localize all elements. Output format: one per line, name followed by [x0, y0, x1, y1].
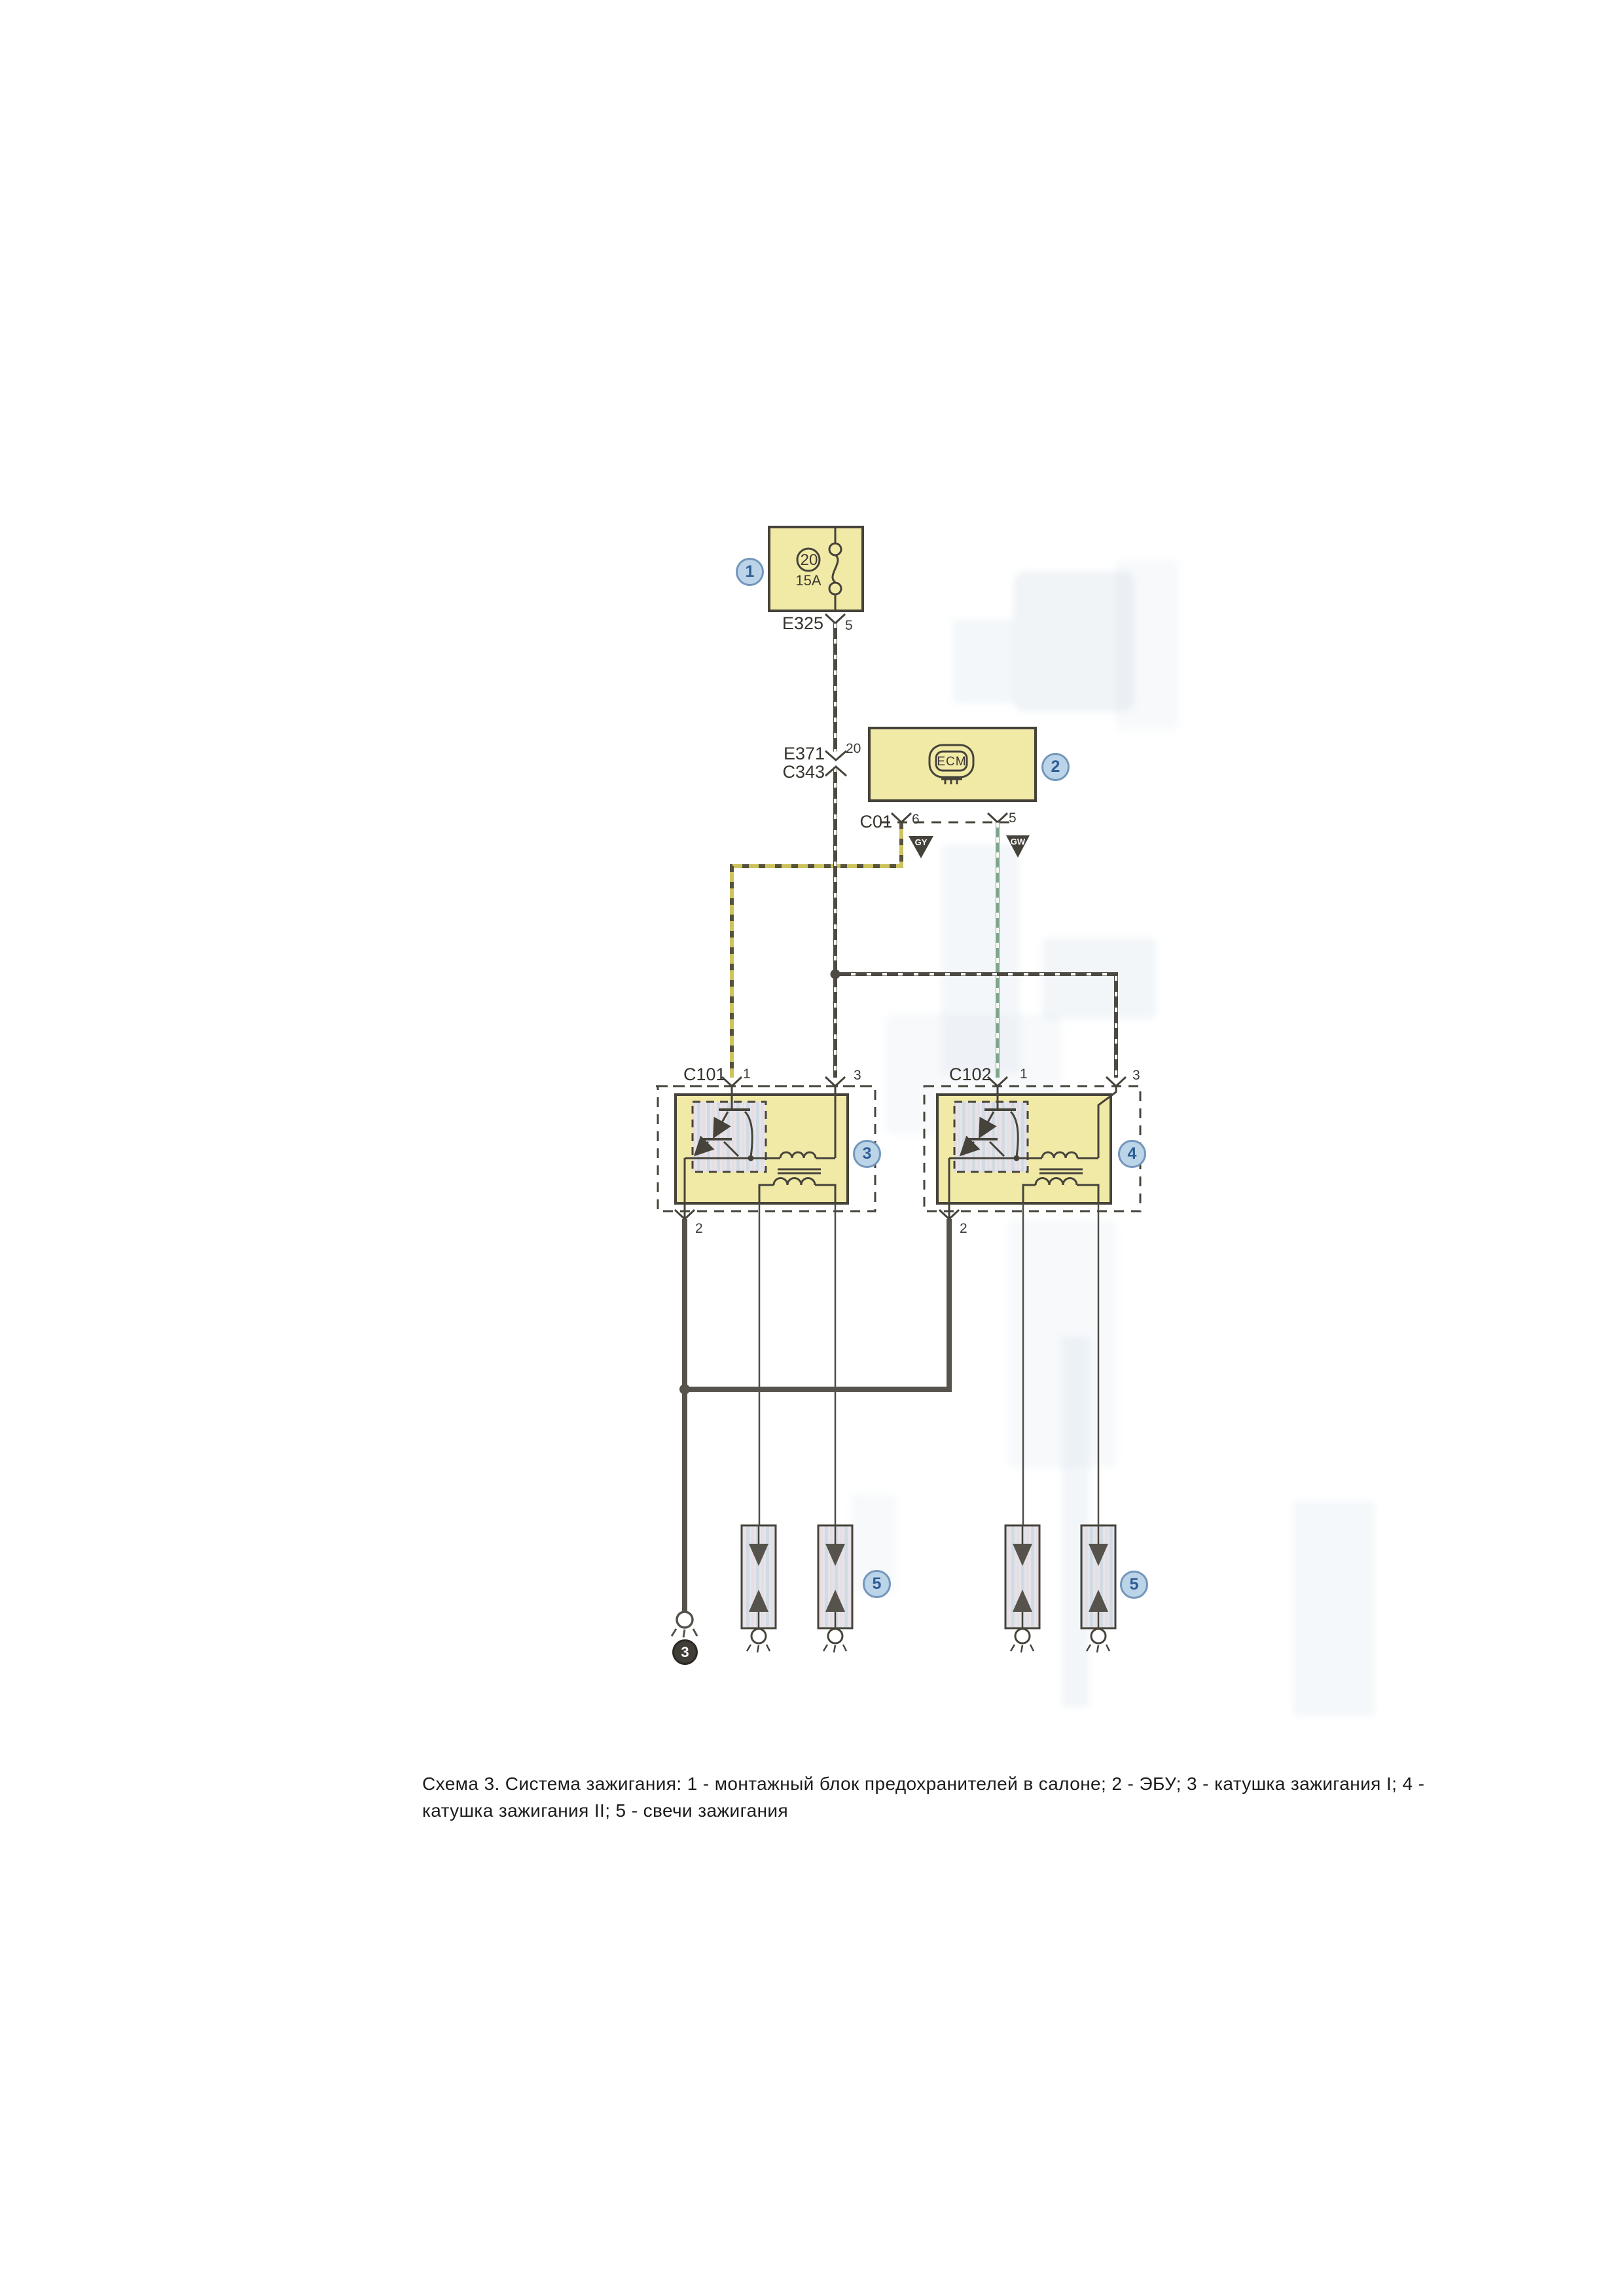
pin-label-c101-1: 1 — [743, 1067, 751, 1081]
callout-3-coil-1: 3 — [853, 1140, 881, 1168]
fuse-rating: 15A — [793, 574, 824, 588]
ignition-coil-1 — [658, 1086, 875, 1211]
splice-junction — [831, 970, 840, 979]
connector-label-c01: C01 — [854, 812, 892, 831]
connector-fork-c01-6 — [892, 813, 911, 822]
ground-point-id: 3 — [672, 1639, 698, 1665]
ecm-logo-text: ECM — [933, 756, 970, 768]
connector-label-c101: C101 — [683, 1065, 726, 1084]
callout-5-plugs-left: 5 — [863, 1570, 891, 1598]
pin-label-c101-2: 2 — [695, 1222, 703, 1235]
fuse-number: 20 — [796, 553, 822, 568]
wire-gy — [732, 822, 901, 1078]
ground-wires — [672, 1219, 949, 1637]
wiring-diagram — [0, 0, 1624, 2296]
callout-1-fuse-block: 1 — [736, 558, 764, 586]
igniter-module — [954, 1102, 1028, 1172]
connector-label-c343: C343 — [774, 763, 825, 781]
spark-plug-1 — [742, 1525, 776, 1652]
pin-label-c01-6: 6 — [912, 812, 920, 826]
wire-code-gw: GW — [1007, 837, 1028, 846]
fuse-block — [769, 527, 863, 611]
spark-plug-2 — [818, 1525, 852, 1652]
wire-code-gy: GY — [911, 838, 931, 847]
figure-caption-line-1: Схема 3. Система зажигания: 1 - монтажны… — [422, 1775, 1424, 1793]
pin-label-c102-3: 3 — [1132, 1068, 1140, 1082]
pin-label-e325-5: 5 — [845, 619, 853, 632]
connector-label-e325: E325 — [772, 614, 823, 632]
ignition-coil-2 — [924, 1086, 1140, 1211]
igniter-module — [693, 1102, 766, 1172]
callout-2-ecm: 2 — [1041, 753, 1070, 781]
pin-label-c101-3: 3 — [854, 1068, 861, 1082]
pin-label-c01-5: 5 — [1009, 811, 1017, 825]
connector-fork-c102-3 — [1106, 1077, 1126, 1086]
pin-label-c102-2: 2 — [960, 1222, 967, 1235]
scanned-manual-page: E325 5 20 15A E371 C343 20 ECM C01 6 5 G… — [0, 0, 1624, 2296]
callout-4-coil-2: 4 — [1118, 1140, 1146, 1168]
connector-fork-e325 — [825, 614, 845, 623]
ground-junction — [679, 1384, 690, 1394]
pin-label-e371-20: 20 — [846, 742, 861, 756]
connector-label-c102: C102 — [949, 1065, 992, 1084]
ground-terminal-icon — [677, 1612, 693, 1628]
figure-caption-line-2: катушка зажигания II; 5 - свечи зажигани… — [422, 1802, 788, 1820]
connector-label-e371: E371 — [776, 744, 825, 763]
connector-fork-c01-5 — [988, 813, 1007, 822]
spark-plug-3 — [1005, 1525, 1039, 1652]
callout-5-plugs-right: 5 — [1120, 1571, 1148, 1599]
connector-fork-c101-3 — [825, 1077, 845, 1086]
spark-plugs — [742, 1525, 1115, 1652]
pin-label-c102-1: 1 — [1020, 1067, 1028, 1081]
